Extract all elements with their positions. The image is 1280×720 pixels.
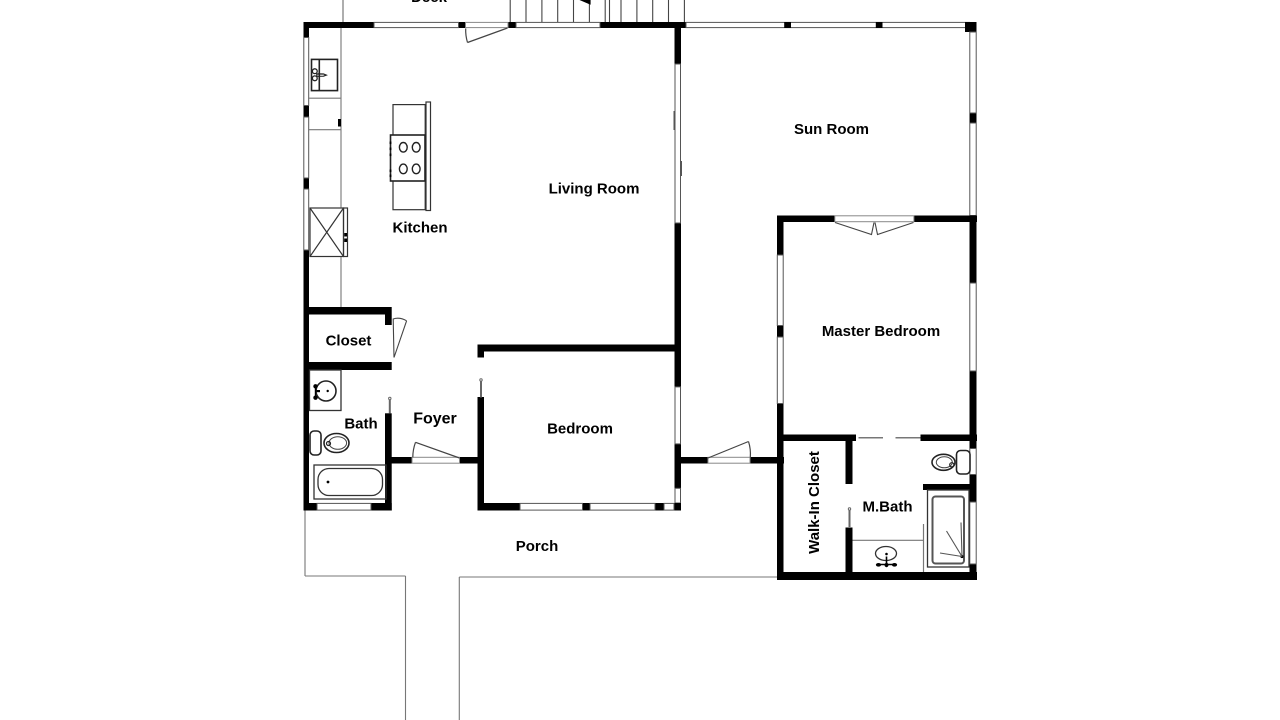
- svg-text:Deck: Deck: [411, 0, 448, 6]
- svg-text:Bath: Bath: [344, 416, 377, 433]
- svg-text:Bedroom: Bedroom: [547, 421, 613, 438]
- svg-text:M.Bath: M.Bath: [863, 499, 913, 516]
- svg-text:Porch: Porch: [516, 538, 559, 555]
- svg-text:Master Bedroom: Master Bedroom: [822, 323, 940, 340]
- svg-text:Kitchen: Kitchen: [392, 220, 447, 237]
- svg-text:Foyer: Foyer: [413, 411, 457, 428]
- svg-text:Walk-In Closet: Walk-In Closet: [806, 451, 823, 554]
- svg-text:Sun Room: Sun Room: [794, 121, 869, 138]
- svg-text:Living Room: Living Room: [549, 181, 640, 198]
- svg-text:Closet: Closet: [326, 333, 372, 350]
